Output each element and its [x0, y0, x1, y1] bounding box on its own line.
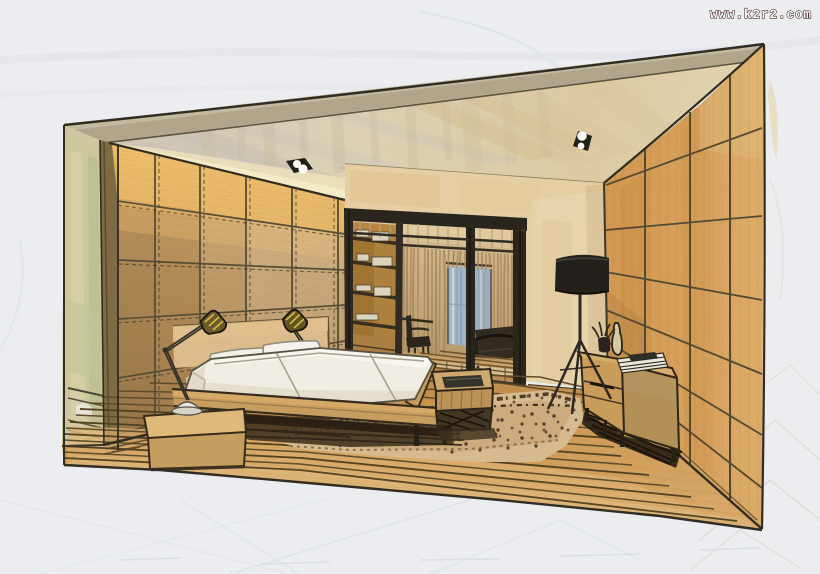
svg-text:www.k2r2.com: www.k2r2.com [710, 8, 812, 22]
